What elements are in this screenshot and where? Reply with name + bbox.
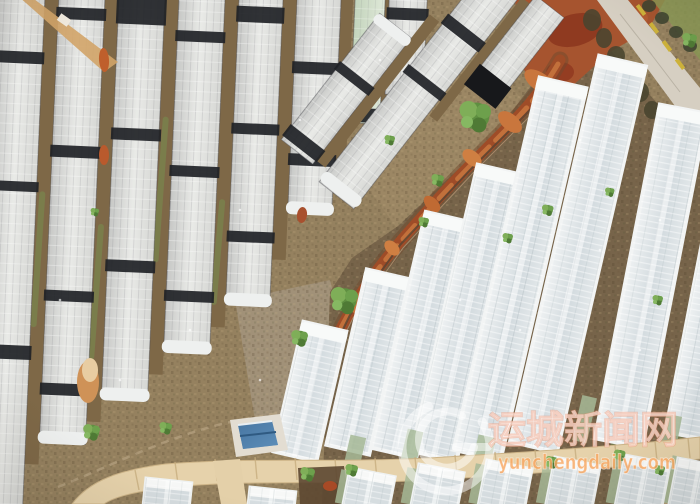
aerial-photo-canvas: 运城新闻网 yunchengdaily.com — [0, 0, 700, 504]
aerial-photo: 运城新闻网 yunchengdaily.com — [0, 0, 700, 504]
watermark-site-name: 运城新闻网 — [488, 408, 678, 452]
watermark-site-url: yunchengdaily.com — [498, 450, 676, 474]
